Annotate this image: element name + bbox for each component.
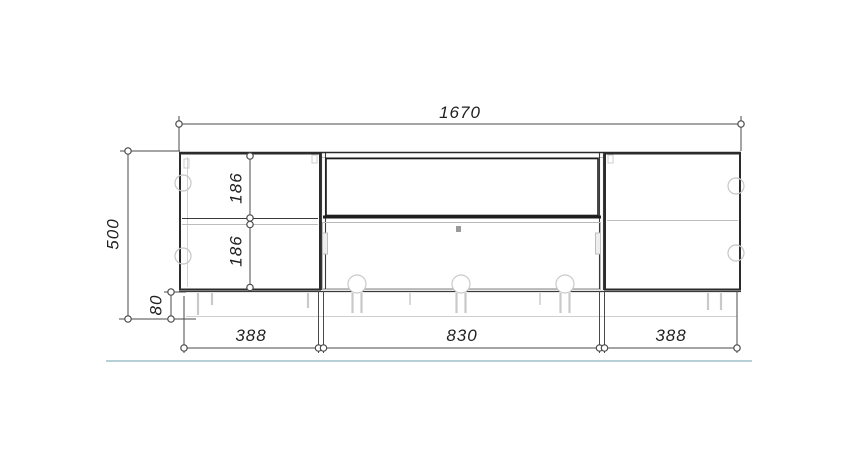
cabinet-body [175,153,744,317]
dim-plinth-height [164,289,186,322]
left-door [175,154,320,290]
open-niche [322,159,601,223]
dim-label-plinth-height: 80 [147,295,166,316]
dim-label-upper-compartment: 186 [227,172,246,203]
push-latch-icon [456,226,461,232]
foot-mount-icon [452,275,470,293]
foot-mount-icon [556,275,574,293]
foot-mount-icon [348,275,366,293]
flap-hinge-icon [323,233,328,254]
dim-label-lower-compartment: 186 [227,235,246,266]
flap-hinge-icon [596,233,601,254]
dim-label-right-section: 388 [655,326,686,345]
furniture-drawing: 1670 500 80 186 186 388 830 388 [0,0,856,461]
right-door [605,154,744,290]
dim-label-total-height: 500 [104,218,123,249]
dim-label-left-section: 388 [235,326,266,345]
dim-label-middle-section: 830 [446,326,477,345]
dim-label-total-width: 1670 [439,103,481,122]
technical-drawing-canvas: 1670 500 80 186 186 388 830 388 [0,0,856,461]
